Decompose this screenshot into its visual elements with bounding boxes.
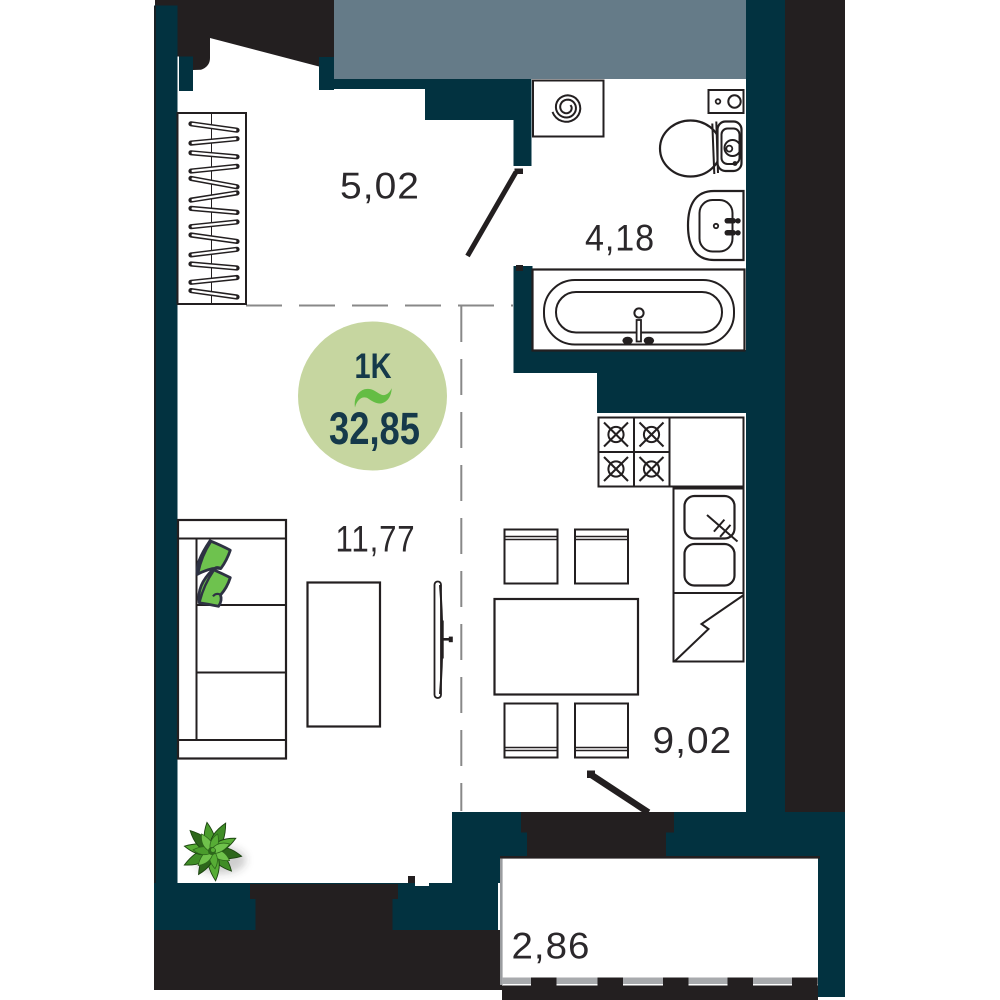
svg-text:11,77: 11,77 (336, 518, 416, 560)
svg-text:5,02: 5,02 (340, 165, 420, 207)
svg-text:1K: 1K (355, 347, 392, 386)
svg-text:9,02: 9,02 (653, 719, 733, 761)
svg-text:32,85: 32,85 (329, 403, 420, 454)
svg-text:4,18: 4,18 (585, 217, 655, 259)
svg-text:2,86: 2,86 (512, 925, 591, 967)
